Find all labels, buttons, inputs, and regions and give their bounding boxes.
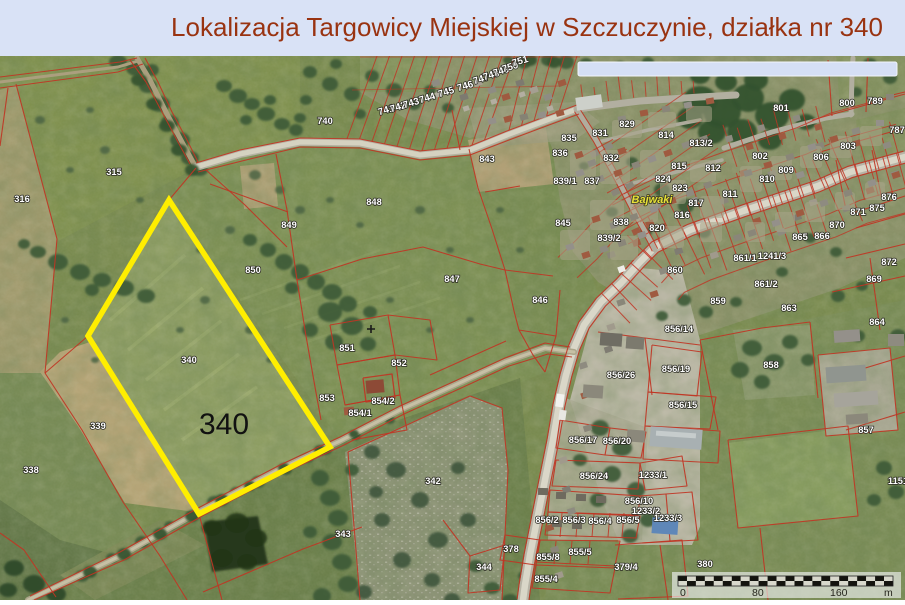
svg-text:832: 832 (603, 153, 619, 163)
svg-text:831: 831 (592, 128, 608, 138)
svg-text:854/1: 854/1 (348, 408, 371, 418)
svg-text:80: 80 (752, 587, 764, 599)
svg-text:850: 850 (245, 265, 261, 275)
svg-text:340: 340 (199, 408, 249, 441)
svg-text:861/2: 861/2 (754, 279, 777, 289)
svg-text:853: 853 (319, 393, 335, 403)
svg-text:851: 851 (339, 343, 355, 353)
svg-text:344: 344 (476, 562, 492, 572)
svg-text:787: 787 (889, 125, 905, 135)
svg-text:1233/1: 1233/1 (639, 470, 667, 480)
svg-text:801: 801 (773, 103, 789, 113)
svg-text:864: 864 (869, 317, 885, 327)
svg-text:852: 852 (391, 358, 407, 368)
svg-text:856/14: 856/14 (665, 324, 694, 334)
svg-text:815: 815 (671, 161, 687, 171)
svg-text:836: 836 (552, 148, 568, 158)
svg-text:856/3: 856/3 (562, 515, 585, 525)
svg-text:810: 810 (759, 174, 775, 184)
svg-text:865: 865 (792, 232, 808, 242)
svg-text:845: 845 (555, 218, 571, 228)
svg-text:379/4: 379/4 (614, 562, 638, 572)
svg-text:823: 823 (672, 183, 688, 193)
svg-text:848: 848 (366, 197, 382, 207)
svg-text:856/17: 856/17 (569, 435, 597, 445)
svg-text:340: 340 (181, 355, 197, 365)
svg-text:342: 342 (425, 476, 441, 486)
svg-text:839/1: 839/1 (553, 176, 576, 186)
svg-text:856/26: 856/26 (607, 370, 635, 380)
svg-text:866: 866 (814, 231, 830, 241)
svg-text:838: 838 (613, 217, 629, 227)
svg-text:802: 802 (752, 151, 768, 161)
svg-text:861/1: 861/1 (733, 253, 756, 263)
svg-text:875: 875 (869, 203, 885, 213)
svg-text:1151: 1151 (888, 476, 905, 486)
svg-text:856/10: 856/10 (625, 496, 653, 506)
svg-text:806: 806 (813, 152, 829, 162)
svg-text:814: 814 (658, 130, 674, 140)
svg-text:839/2: 839/2 (597, 233, 620, 243)
svg-text:1241/3: 1241/3 (758, 251, 786, 261)
svg-text:315: 315 (106, 167, 122, 177)
svg-text:816: 816 (674, 210, 690, 220)
svg-text:856/20: 856/20 (603, 436, 631, 446)
svg-text:Lokalizacja Targowicy Miejskie: Lokalizacja Targowicy Miejskiej w Szczuc… (171, 12, 883, 42)
svg-text:316: 316 (14, 194, 30, 204)
svg-text:855/5: 855/5 (568, 547, 591, 557)
svg-text:858: 858 (763, 360, 779, 370)
svg-text:812: 812 (705, 163, 721, 173)
svg-text:859: 859 (710, 296, 726, 306)
svg-text:800: 800 (839, 98, 855, 108)
svg-text:854/2: 854/2 (371, 396, 394, 406)
svg-text:160: 160 (830, 587, 848, 599)
svg-text:338: 338 (23, 465, 39, 475)
svg-text:813/2: 813/2 (689, 138, 712, 148)
svg-text:811: 811 (723, 189, 738, 199)
svg-text:856/2: 856/2 (535, 515, 558, 525)
svg-text:855/4: 855/4 (534, 574, 558, 584)
svg-text:856/5: 856/5 (616, 515, 639, 525)
svg-text:809: 809 (778, 165, 794, 175)
svg-text:803: 803 (840, 141, 856, 151)
svg-text:740: 740 (317, 116, 333, 126)
svg-text:843: 843 (479, 154, 495, 164)
svg-text:857: 857 (858, 425, 874, 435)
svg-text:863: 863 (781, 303, 797, 313)
svg-text:869: 869 (866, 274, 882, 284)
svg-text:1233/3: 1233/3 (654, 513, 682, 523)
svg-text:870: 870 (829, 220, 845, 230)
svg-text:876: 876 (881, 192, 897, 202)
svg-text:817: 817 (688, 198, 704, 208)
svg-text:824: 824 (655, 174, 671, 184)
svg-text:835: 835 (561, 133, 577, 143)
svg-text:856/19: 856/19 (662, 364, 690, 374)
svg-text:829: 829 (619, 119, 635, 129)
svg-text:789: 789 (867, 96, 883, 106)
svg-text:m: m (884, 587, 893, 599)
svg-text:0: 0 (680, 587, 686, 599)
svg-text:856/24: 856/24 (580, 471, 609, 481)
svg-text:872: 872 (881, 257, 897, 267)
svg-text:855/8: 855/8 (536, 552, 559, 562)
svg-text:380: 380 (697, 559, 713, 569)
svg-text:871: 871 (850, 207, 866, 217)
svg-text:846: 846 (532, 295, 548, 305)
svg-text:847: 847 (444, 274, 460, 284)
svg-text:860: 860 (667, 265, 683, 275)
svg-text:849: 849 (281, 220, 297, 230)
svg-text:856/15: 856/15 (669, 400, 697, 410)
svg-text:339: 339 (90, 421, 106, 431)
svg-text:Bajwaki: Bajwaki (632, 194, 674, 206)
svg-text:856/4: 856/4 (588, 516, 612, 526)
svg-text:378: 378 (503, 544, 519, 554)
svg-text:820: 820 (649, 223, 665, 233)
svg-text:837: 837 (584, 176, 600, 186)
svg-text:343: 343 (335, 529, 351, 539)
